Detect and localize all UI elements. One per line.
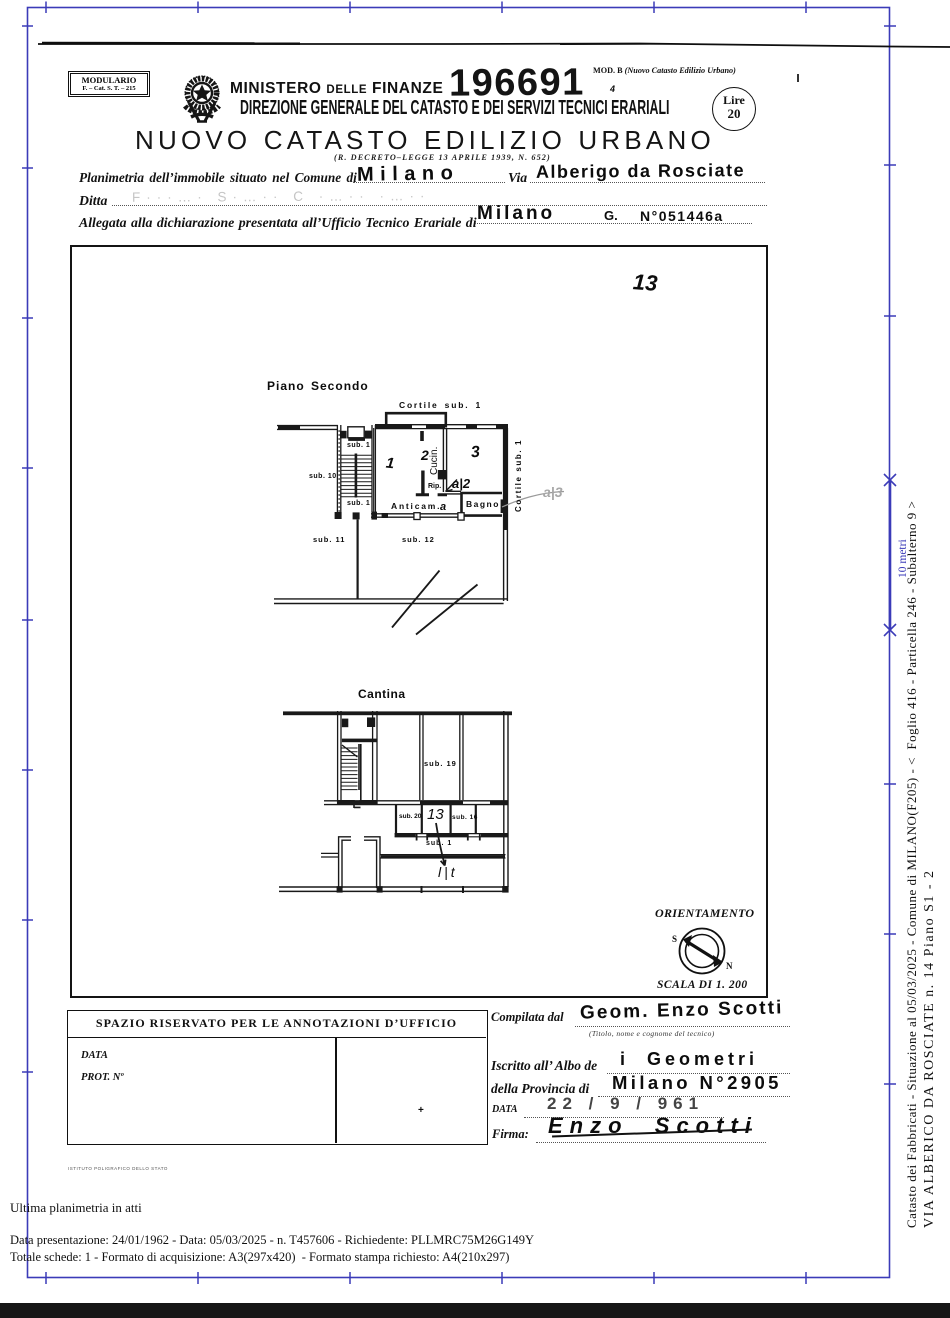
svg-text:S: S	[672, 934, 677, 944]
svg-text:N: N	[726, 961, 733, 971]
